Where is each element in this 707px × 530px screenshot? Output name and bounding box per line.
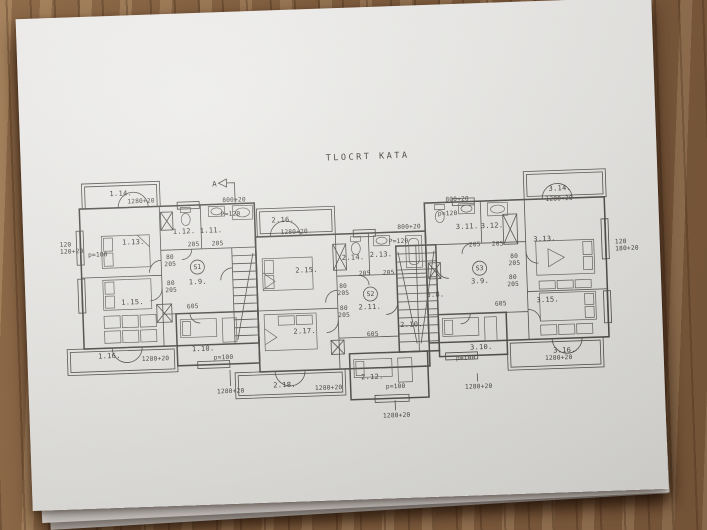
- dim-label: 205: [492, 240, 504, 247]
- room-labels: 1.14.1.13.1.12.1.11.1.9.1.15.1.10.1.16.2…: [92, 174, 577, 396]
- room-label: 1.14.: [109, 189, 132, 198]
- stamp-label: S3: [476, 264, 484, 272]
- dim-label: 205: [337, 290, 349, 297]
- dim-label: p=100: [456, 354, 476, 362]
- dim-label: 205: [165, 287, 177, 294]
- dim-label: p=100: [214, 354, 234, 362]
- dim-label: 205: [164, 261, 176, 268]
- room-label: 1.9.: [189, 278, 207, 287]
- room-label: 3.8.: [426, 290, 444, 299]
- dim-label: 205: [359, 270, 371, 277]
- dim-label: 205: [508, 260, 520, 267]
- stamp-label: S2: [366, 290, 374, 298]
- dim-label: 205: [507, 281, 519, 288]
- dim-label: 800+20: [222, 196, 246, 204]
- dim-label: p=120: [438, 210, 458, 218]
- room-label: 2.13.: [370, 250, 393, 259]
- dim-label: 1280+20: [545, 354, 573, 362]
- room-label: 2.17.: [293, 327, 316, 336]
- dim-label: 1280+20: [383, 412, 411, 420]
- floorplan-drawing: TLOCRT KATA A: [16, 0, 669, 511]
- room-label: 1.12.: [173, 227, 196, 236]
- dim-label: 1280+20: [465, 383, 493, 391]
- dim-label: 1280+20: [315, 384, 343, 392]
- dim-label: 205: [212, 240, 224, 247]
- dim-label: 205: [469, 241, 481, 248]
- room-label: 2.10.: [400, 320, 423, 329]
- stairs: [232, 247, 439, 350]
- dim-label: 1280+20: [142, 355, 170, 363]
- room-label: 2.11.: [358, 303, 381, 312]
- dim-label: 180+20: [615, 245, 639, 253]
- paper-sheet-top: TLOCRT KATA A: [16, 0, 669, 511]
- dim-label: 1280+20: [280, 228, 308, 236]
- dim-label: 800+20: [397, 223, 421, 231]
- room-label: 1.10.: [192, 345, 215, 354]
- room-label: 3.10.: [470, 343, 493, 352]
- dim-label: 800+20: [445, 196, 469, 204]
- room-label: 3.13.: [533, 235, 556, 244]
- room-label: 1.15.: [121, 298, 144, 307]
- room-label: 2.15.: [295, 266, 318, 275]
- dim-label: 605: [187, 303, 199, 310]
- room-label: 2.12.: [361, 373, 384, 382]
- section-marker-letter: A: [212, 179, 217, 188]
- dim-label: 205: [338, 312, 350, 319]
- dim-label: 1280+20: [217, 387, 245, 395]
- room-label: 3.12.: [481, 221, 504, 230]
- room-label: 2.14.: [342, 253, 365, 262]
- stamp-label: S1: [193, 263, 201, 271]
- room-label: 3.9.: [471, 277, 489, 286]
- room-label: 3.14.: [548, 184, 571, 193]
- bathroom-fixtures: [180, 196, 509, 275]
- section-marker-arrow-icon: [218, 179, 226, 187]
- dim-label: p=100: [386, 383, 406, 391]
- dim-label: 1280+20: [545, 195, 573, 203]
- dim-label: 205: [188, 241, 200, 248]
- room-label: 2.18.: [273, 381, 296, 390]
- dim-label: 605: [495, 300, 507, 307]
- dim-label: 120+20: [60, 248, 84, 256]
- windows: [75, 187, 614, 412]
- dim-label: 1280+20: [127, 198, 155, 206]
- drawing-title: TLOCRT KATA: [326, 151, 410, 164]
- dim-label: 605: [367, 331, 379, 338]
- room-label: 1.11.: [200, 226, 223, 235]
- room-label: 1.16.: [98, 352, 121, 361]
- photo-of-floorplan: TLOCRT KATA A: [0, 0, 707, 530]
- dim-label: 205: [383, 269, 395, 276]
- room-label: 3.11.: [456, 222, 479, 231]
- room-label: 1.13.: [122, 238, 145, 247]
- room-label: 2.16.: [271, 216, 294, 225]
- dim-label: P=120: [221, 211, 241, 219]
- dim-label: p=100: [88, 251, 108, 259]
- dim-label: P=120: [389, 238, 409, 246]
- room-label: 3.15.: [536, 295, 559, 304]
